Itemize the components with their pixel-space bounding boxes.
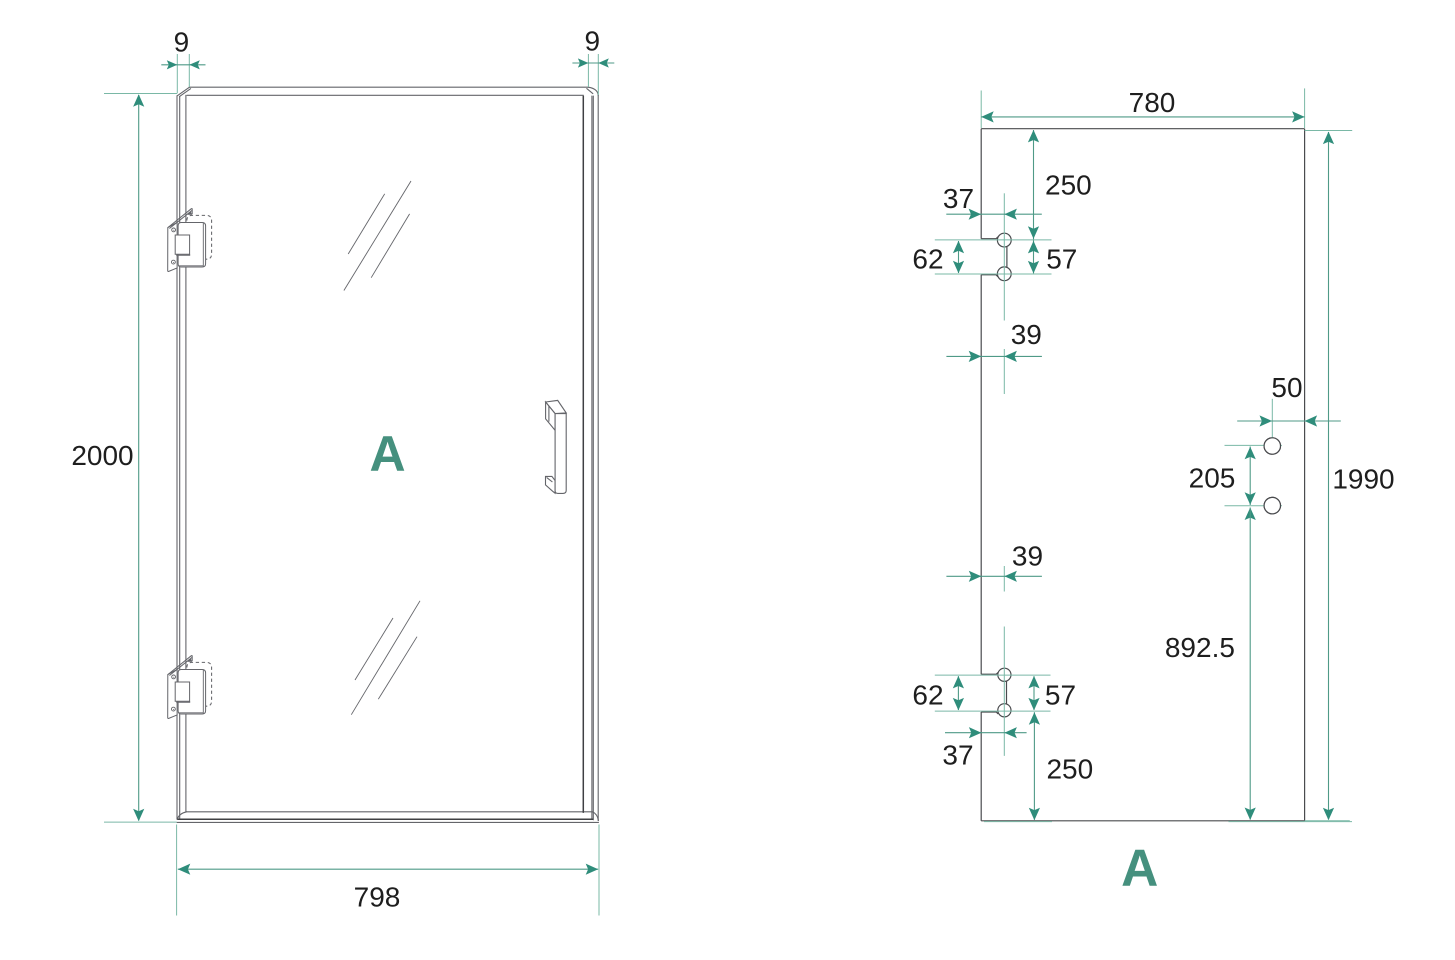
svg-text:A: A — [369, 426, 405, 482]
svg-text:2000: 2000 — [71, 440, 133, 471]
svg-text:57: 57 — [1045, 679, 1076, 710]
svg-text:37: 37 — [942, 740, 973, 771]
svg-text:57: 57 — [1046, 244, 1077, 275]
svg-text:250: 250 — [1046, 754, 1093, 785]
svg-text:50: 50 — [1271, 372, 1302, 403]
svg-text:62: 62 — [912, 679, 943, 710]
svg-text:37: 37 — [943, 183, 974, 214]
svg-text:250: 250 — [1045, 169, 1092, 200]
svg-text:205: 205 — [1189, 463, 1236, 494]
svg-text:9: 9 — [174, 27, 190, 58]
svg-text:780: 780 — [1129, 87, 1176, 118]
svg-text:798: 798 — [354, 882, 401, 913]
svg-text:892.5: 892.5 — [1165, 632, 1235, 663]
svg-text:39: 39 — [1011, 319, 1042, 350]
svg-text:62: 62 — [912, 244, 943, 275]
svg-text:1990: 1990 — [1332, 464, 1394, 495]
svg-text:A: A — [1121, 838, 1158, 896]
svg-text:9: 9 — [585, 25, 601, 56]
svg-text:39: 39 — [1012, 541, 1043, 572]
